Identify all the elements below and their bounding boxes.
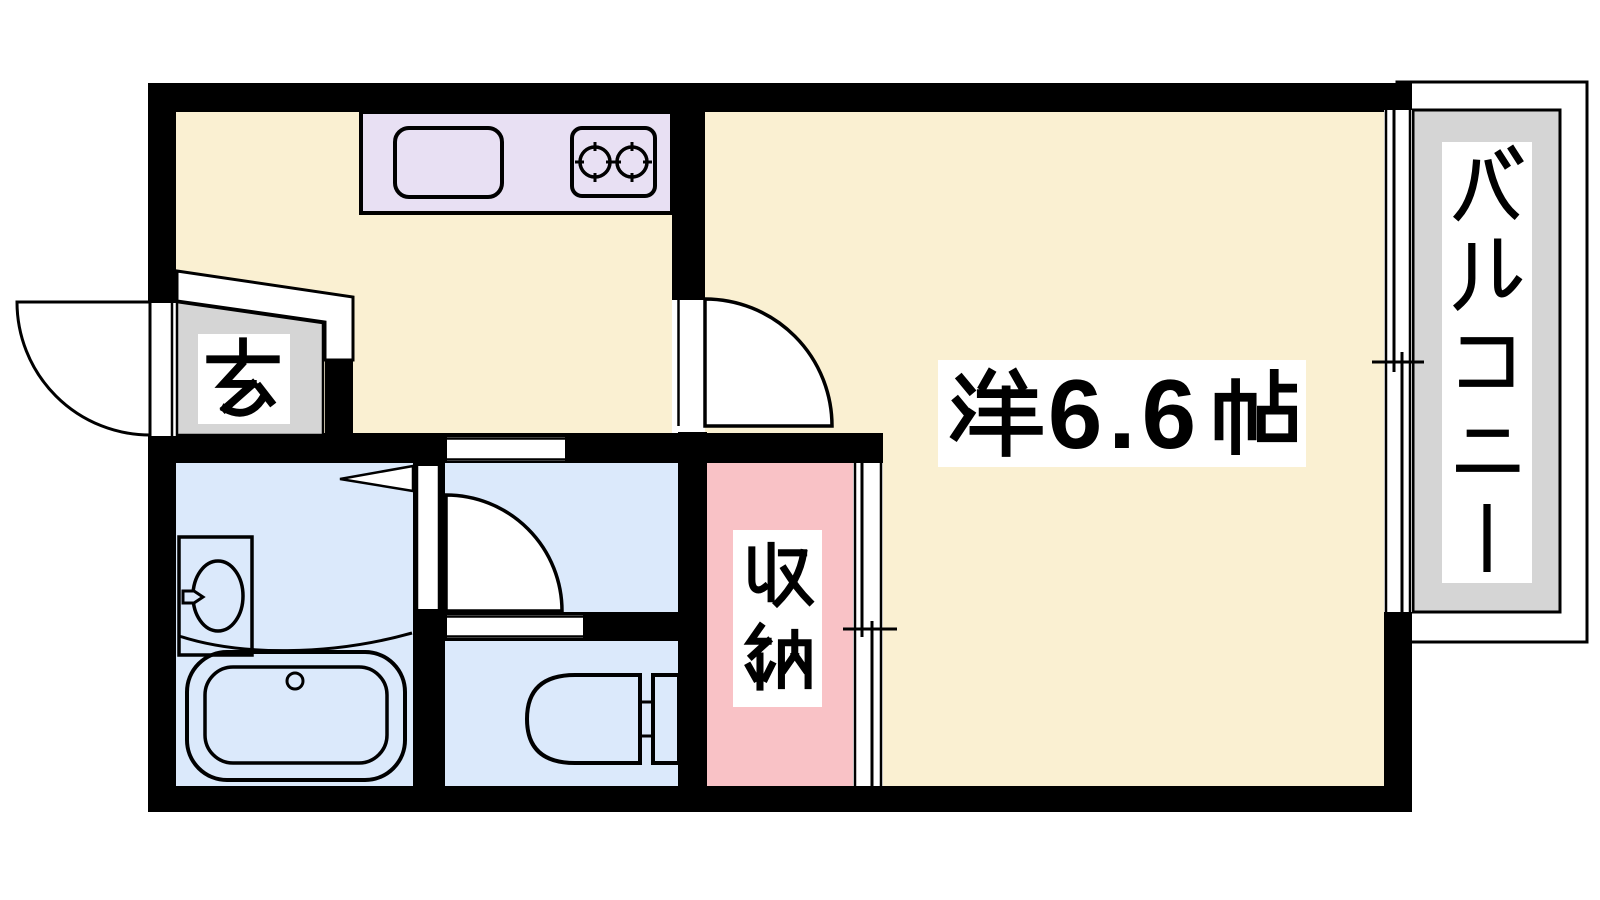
floor-plan-drawing: 6.6: [0, 0, 1600, 900]
kitchen-hallway-opening: [447, 437, 565, 461]
wall-entrance-piece: [325, 360, 353, 438]
wall-left-lower: [148, 436, 176, 812]
main-room-size-text: 6.6: [1048, 359, 1202, 469]
entrance-door-opening: [150, 303, 172, 436]
entrance-area: [17, 271, 353, 438]
wall-top: [148, 83, 1412, 112]
entrance-door-swing: [17, 302, 150, 435]
wall-right-lower: [1384, 612, 1412, 812]
kitchen-counter: [361, 112, 672, 213]
toilet-room-floor: [445, 640, 678, 786]
kitchen-door-opening: [677, 300, 705, 426]
wall-kitchen-mainroom: [672, 83, 705, 300]
wall-storage-left: [678, 432, 707, 786]
wall-left-upper: [148, 83, 176, 303]
wall-right-upper: [1384, 83, 1412, 111]
floor-plan: 6.6 玄 収納 洋6.6帖 バルコニー: [0, 0, 1600, 900]
washroom-door-opening: [416, 466, 440, 609]
wall-bottom: [148, 786, 1412, 812]
hallway-toilet-opening: [447, 615, 583, 638]
washroom-floor: [176, 463, 413, 786]
